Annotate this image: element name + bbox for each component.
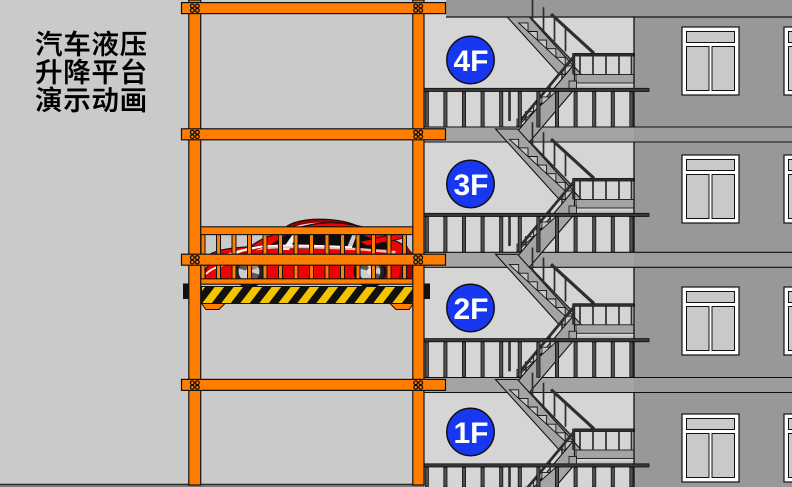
svg-text:2F: 2F [453,293,488,326]
svg-text:1F: 1F [453,417,488,450]
svg-text:3F: 3F [453,169,488,202]
svg-text:4F: 4F [453,45,488,78]
